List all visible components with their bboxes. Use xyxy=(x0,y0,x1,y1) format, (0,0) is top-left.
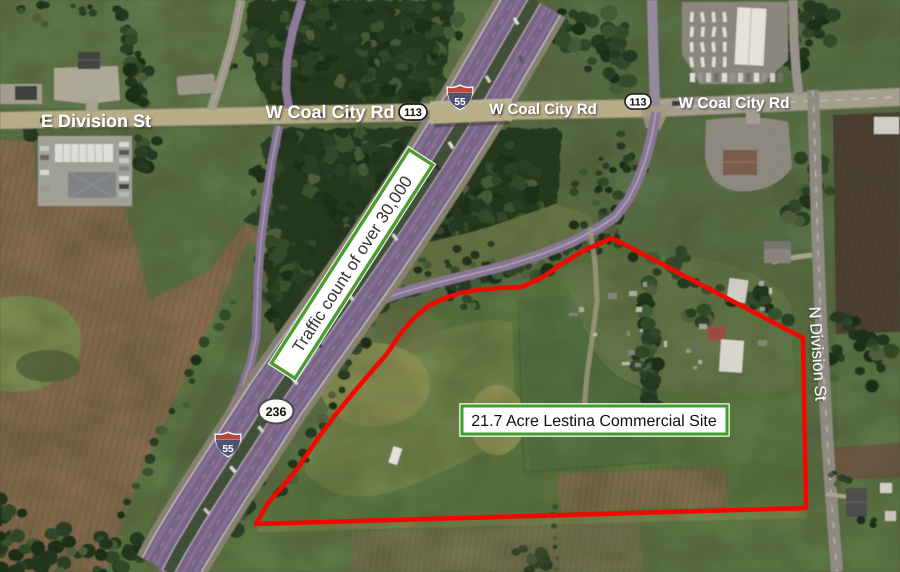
svg-text:W Coal City Rd: W Coal City Rd xyxy=(266,102,395,122)
svg-text:113: 113 xyxy=(404,107,422,119)
svg-text:113: 113 xyxy=(630,97,647,109)
svg-text:55: 55 xyxy=(222,443,234,454)
svg-text:E Division St: E Division St xyxy=(41,111,151,131)
svg-text:21.7 Acre Lestina Commercial S: 21.7 Acre Lestina Commercial Site xyxy=(471,413,717,430)
svg-text:55: 55 xyxy=(454,96,466,107)
svg-text:236: 236 xyxy=(266,405,287,419)
svg-text:W Coal City Rd: W Coal City Rd xyxy=(678,95,789,112)
svg-text:W Coal City Rd: W Coal City Rd xyxy=(489,101,597,118)
